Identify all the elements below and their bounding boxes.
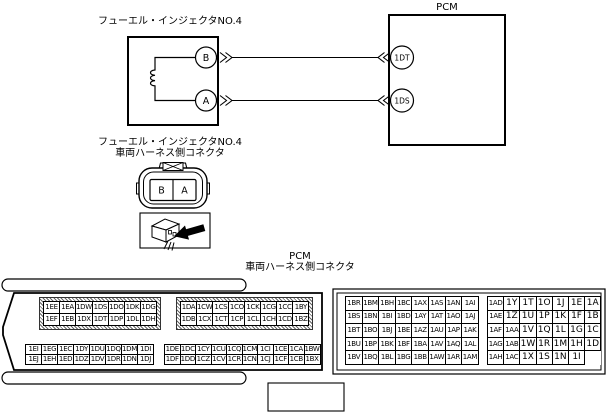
pin-1EG: 1EG	[42, 345, 58, 355]
pin-1CY: 1CY	[196, 345, 212, 355]
pin-1BA: 1BA	[412, 337, 429, 351]
pin-grid-hatched-right: 1DA1CW1CS1CO1CK1CG1CC1BY1DB1CX1CT1CP1CL1…	[180, 301, 309, 326]
pin-1BP: 1BP	[362, 337, 379, 351]
pin-1A: 1A	[585, 297, 601, 311]
pin-1DP: 1DP	[108, 314, 124, 326]
pin-1DO: 1DO	[108, 302, 124, 314]
pin-1BG: 1BG	[395, 351, 412, 365]
pin-grid-hatched-right-wrapper: 1DA1CW1CS1CO1CK1CG1CC1BY1DB1CX1CT1CP1CL1…	[176, 297, 313, 330]
pin-1DE: 1DE	[165, 345, 181, 355]
pin-1DW: 1DW	[76, 302, 93, 314]
pin-1B: 1B	[585, 310, 601, 324]
pin-1EB: 1EB	[60, 314, 76, 326]
pin-1BH: 1BH	[379, 297, 396, 311]
junction-chevron-icon	[220, 96, 232, 106]
pin-1CH: 1CH	[261, 314, 277, 326]
injector-label: フューエル・インジェクタNO.4	[90, 16, 250, 27]
cavity-a-label: A	[181, 186, 188, 197]
pin-1AH: 1AH	[488, 351, 504, 365]
pin-1DK: 1DK	[124, 302, 140, 314]
pin-1AT: 1AT	[428, 310, 445, 324]
pin-1AD: 1AD	[488, 297, 504, 311]
pin-1Q: 1Q	[536, 324, 552, 338]
pin-1EA: 1EA	[60, 302, 76, 314]
pin-1AS: 1AS	[428, 297, 445, 311]
pin-1AV: 1AV	[428, 337, 445, 351]
coil-icon	[151, 58, 197, 101]
pcm-box	[389, 15, 505, 145]
pin-1V: 1V	[520, 324, 536, 338]
pin-1CT: 1CT	[213, 314, 229, 326]
pcm-connector-label-line2: 車両ハーネス側コネクタ	[220, 262, 380, 273]
pin-1P: 1P	[536, 310, 552, 324]
pin-grid-right-left: 1BR1BM1BH1BC1AX1AS1AN1AI1BS1BN1BI1BD1AY1…	[345, 296, 479, 365]
pin-grid-lower-right: 1DE1DC1CY1CU1CQ1CM1CI1CE1CA1BW1DF1DD1CZ1…	[164, 344, 321, 365]
terminal-b-label: B	[203, 53, 210, 64]
pin-1CW: 1CW	[197, 302, 213, 314]
pin-1DT: 1DT	[92, 314, 108, 326]
pin-1CJ: 1CJ	[258, 355, 274, 365]
pin-1BZ: 1BZ	[293, 314, 309, 326]
pin-1DM: 1DM	[122, 345, 138, 355]
pin-1BW: 1BW	[304, 345, 320, 355]
pin-1Z: 1Z	[504, 310, 520, 324]
pin-1BC: 1BC	[395, 297, 412, 311]
pin-1DR: 1DR	[106, 355, 122, 365]
pin-1BB: 1BB	[412, 351, 429, 365]
pin-1CO: 1CO	[229, 302, 245, 314]
pin-1AC: 1AC	[504, 351, 520, 365]
pin-1S: 1S	[536, 351, 552, 365]
pin-1CZ: 1CZ	[196, 355, 212, 365]
pin-1DI: 1DI	[138, 345, 154, 355]
pin-1DL: 1DL	[124, 314, 140, 326]
pin-1BQ: 1BQ	[362, 351, 379, 365]
pin-1AR: 1AR	[445, 351, 462, 365]
pin-1AK: 1AK	[462, 324, 479, 338]
pin-1BK: 1BK	[379, 337, 396, 351]
pin-1H: 1H	[568, 337, 584, 351]
pin-1AB: 1AB	[504, 337, 520, 351]
pin-1BU: 1BU	[346, 337, 363, 351]
pin-1AW: 1AW	[428, 351, 445, 365]
pin-1BM: 1BM	[362, 297, 379, 311]
pin-1CU: 1CU	[211, 345, 227, 355]
pin-1DH: 1DH	[140, 314, 156, 326]
pin-1DB: 1DB	[181, 314, 197, 326]
pin-1CB: 1CB	[289, 355, 305, 365]
pin-1N: 1N	[552, 351, 568, 365]
pin-1X: 1X	[520, 351, 536, 365]
pin-1G: 1G	[568, 324, 584, 338]
pin-1DJ: 1DJ	[138, 355, 154, 365]
pin-1BR: 1BR	[346, 297, 363, 311]
pin-1DX: 1DX	[76, 314, 93, 326]
pin-1C: 1C	[585, 324, 601, 338]
pin-1DD: 1DD	[180, 355, 196, 365]
pin-1BI: 1BI	[379, 310, 396, 324]
pin-1O: 1O	[536, 297, 552, 311]
pin-1AI: 1AI	[462, 297, 479, 311]
view-icon-box-lower	[268, 383, 344, 411]
terminal-a-label: A	[203, 96, 210, 107]
pin-1DA: 1DA	[181, 302, 197, 314]
pin-1BE: 1BE	[395, 324, 412, 338]
pin-1CC: 1CC	[277, 302, 293, 314]
pin-1F: 1F	[568, 310, 584, 324]
pin-1DG: 1DG	[140, 302, 156, 314]
pin-1EJ: 1EJ	[26, 355, 42, 365]
pin-1CR: 1CR	[227, 355, 243, 365]
pin-1BD: 1BD	[395, 310, 412, 324]
pin-1CN: 1CN	[242, 355, 258, 365]
pin-1CL: 1CL	[245, 314, 261, 326]
pin-1AU: 1AU	[428, 324, 445, 338]
pin-1AQ: 1AQ	[445, 337, 462, 351]
pin-1BX: 1BX	[304, 355, 320, 365]
pin-grid-right-right: 1AD1Y1T1O1J1E1A1AE1Z1U1P1K1F1B1AF1AA1V1Q…	[487, 296, 601, 365]
pin-1DF: 1DF	[165, 355, 181, 365]
wiring-diagram-page: B A 1DT 1DS B A	[0, 0, 609, 420]
pin-1K: 1K	[552, 310, 568, 324]
terminal-1ds-label: 1DS	[394, 96, 410, 105]
pin-1J: 1J	[552, 297, 568, 311]
harness-connector-label-line2: 車両ハーネス側コネクタ	[90, 148, 250, 159]
pin-1I: 1I	[568, 351, 584, 365]
pin-1CX: 1CX	[197, 314, 213, 326]
pin-1BF: 1BF	[395, 337, 412, 351]
pin-1ED: 1ED	[58, 355, 74, 365]
pin-1E: 1E	[568, 297, 584, 311]
pin-1AG: 1AG	[488, 337, 504, 351]
pin-grid-lower-left: 1EI1EG1EC1DY1DU1DQ1DM1DI1EJ1EH1ED1DZ1DV1…	[25, 344, 154, 365]
pin-1AF: 1AF	[488, 324, 504, 338]
pin-1EF: 1EF	[44, 314, 60, 326]
pin-grid-hatched-left-wrapper: 1EE1EA1DW1DS1DO1DK1DG1EF1EB1DX1DT1DP1DL1…	[39, 297, 161, 330]
pin-1DS: 1DS	[92, 302, 108, 314]
pin-1DY: 1DY	[74, 345, 90, 355]
pin-1CP: 1CP	[229, 314, 245, 326]
pin-1AO: 1AO	[445, 310, 462, 324]
pin-1DC: 1DC	[180, 345, 196, 355]
pin-1AJ: 1AJ	[462, 310, 479, 324]
pin-1AN: 1AN	[445, 297, 462, 311]
junction-chevron-icon	[220, 53, 232, 63]
pin-1EI: 1EI	[26, 345, 42, 355]
pin-1D: 1D	[585, 337, 601, 351]
pin-1W: 1W	[520, 337, 536, 351]
pin-1CA: 1CA	[289, 345, 305, 355]
pin-1CI: 1CI	[258, 345, 274, 355]
pin-1T: 1T	[520, 297, 536, 311]
pin-1L: 1L	[552, 324, 568, 338]
pin-1BT: 1BT	[346, 324, 363, 338]
pin-1DV: 1DV	[90, 355, 106, 365]
pin-1AZ: 1AZ	[412, 324, 429, 338]
pin-1AA: 1AA	[504, 324, 520, 338]
cavity-b-label: B	[158, 186, 165, 197]
pin-grid-hatched-left: 1EE1EA1DW1DS1DO1DK1DG1EF1EB1DX1DT1DP1DL1…	[43, 301, 157, 326]
pin-1AP: 1AP	[445, 324, 462, 338]
pin-1AM: 1AM	[462, 351, 479, 365]
pin-1EH: 1EH	[42, 355, 58, 365]
pin-1CS: 1CS	[213, 302, 229, 314]
pin-1CM: 1CM	[242, 345, 258, 355]
pin-1U: 1U	[520, 310, 536, 324]
pin-1CE: 1CE	[273, 345, 289, 355]
pin-1BY: 1BY	[293, 302, 309, 314]
pin-1DN: 1DN	[122, 355, 138, 365]
pin-1BO: 1BO	[362, 324, 379, 338]
pin-1BL: 1BL	[379, 351, 396, 365]
pin-1R: 1R	[536, 337, 552, 351]
pin-1BS: 1BS	[346, 310, 363, 324]
pin-1CK: 1CK	[245, 302, 261, 314]
harness-connector-label-line1: フューエル・インジェクタNO.4	[90, 137, 250, 148]
pin-1BV: 1BV	[346, 351, 363, 365]
pin-1AY: 1AY	[412, 310, 429, 324]
pcm-connector-label-line1: PCM	[250, 251, 350, 262]
pin-1DZ: 1DZ	[74, 355, 90, 365]
pin-1M: 1M	[552, 337, 568, 351]
pin-1CQ: 1CQ	[227, 345, 243, 355]
injector-connector-drawing: B A	[137, 163, 210, 209]
pin-1CF: 1CF	[273, 355, 289, 365]
pin-1CG: 1CG	[261, 302, 277, 314]
pin-1BN: 1BN	[362, 310, 379, 324]
pin-1AL: 1AL	[462, 337, 479, 351]
pin-1AX: 1AX	[412, 297, 429, 311]
terminal-1dt-label: 1DT	[394, 53, 410, 62]
pcm-label: PCM	[407, 2, 487, 13]
pin-1DQ: 1DQ	[106, 345, 122, 355]
connector-rail-top	[2, 279, 246, 291]
pin-1EC: 1EC	[58, 345, 74, 355]
pin-1Y: 1Y	[504, 297, 520, 311]
pin-1DU: 1DU	[90, 345, 106, 355]
pin-1EE: 1EE	[44, 302, 60, 314]
pin-1BJ: 1BJ	[379, 324, 396, 338]
pin-1AE: 1AE	[488, 310, 504, 324]
pin-1CV: 1CV	[211, 355, 227, 365]
pin-1CD: 1CD	[277, 314, 293, 326]
connector-rail-bottom	[2, 372, 246, 384]
